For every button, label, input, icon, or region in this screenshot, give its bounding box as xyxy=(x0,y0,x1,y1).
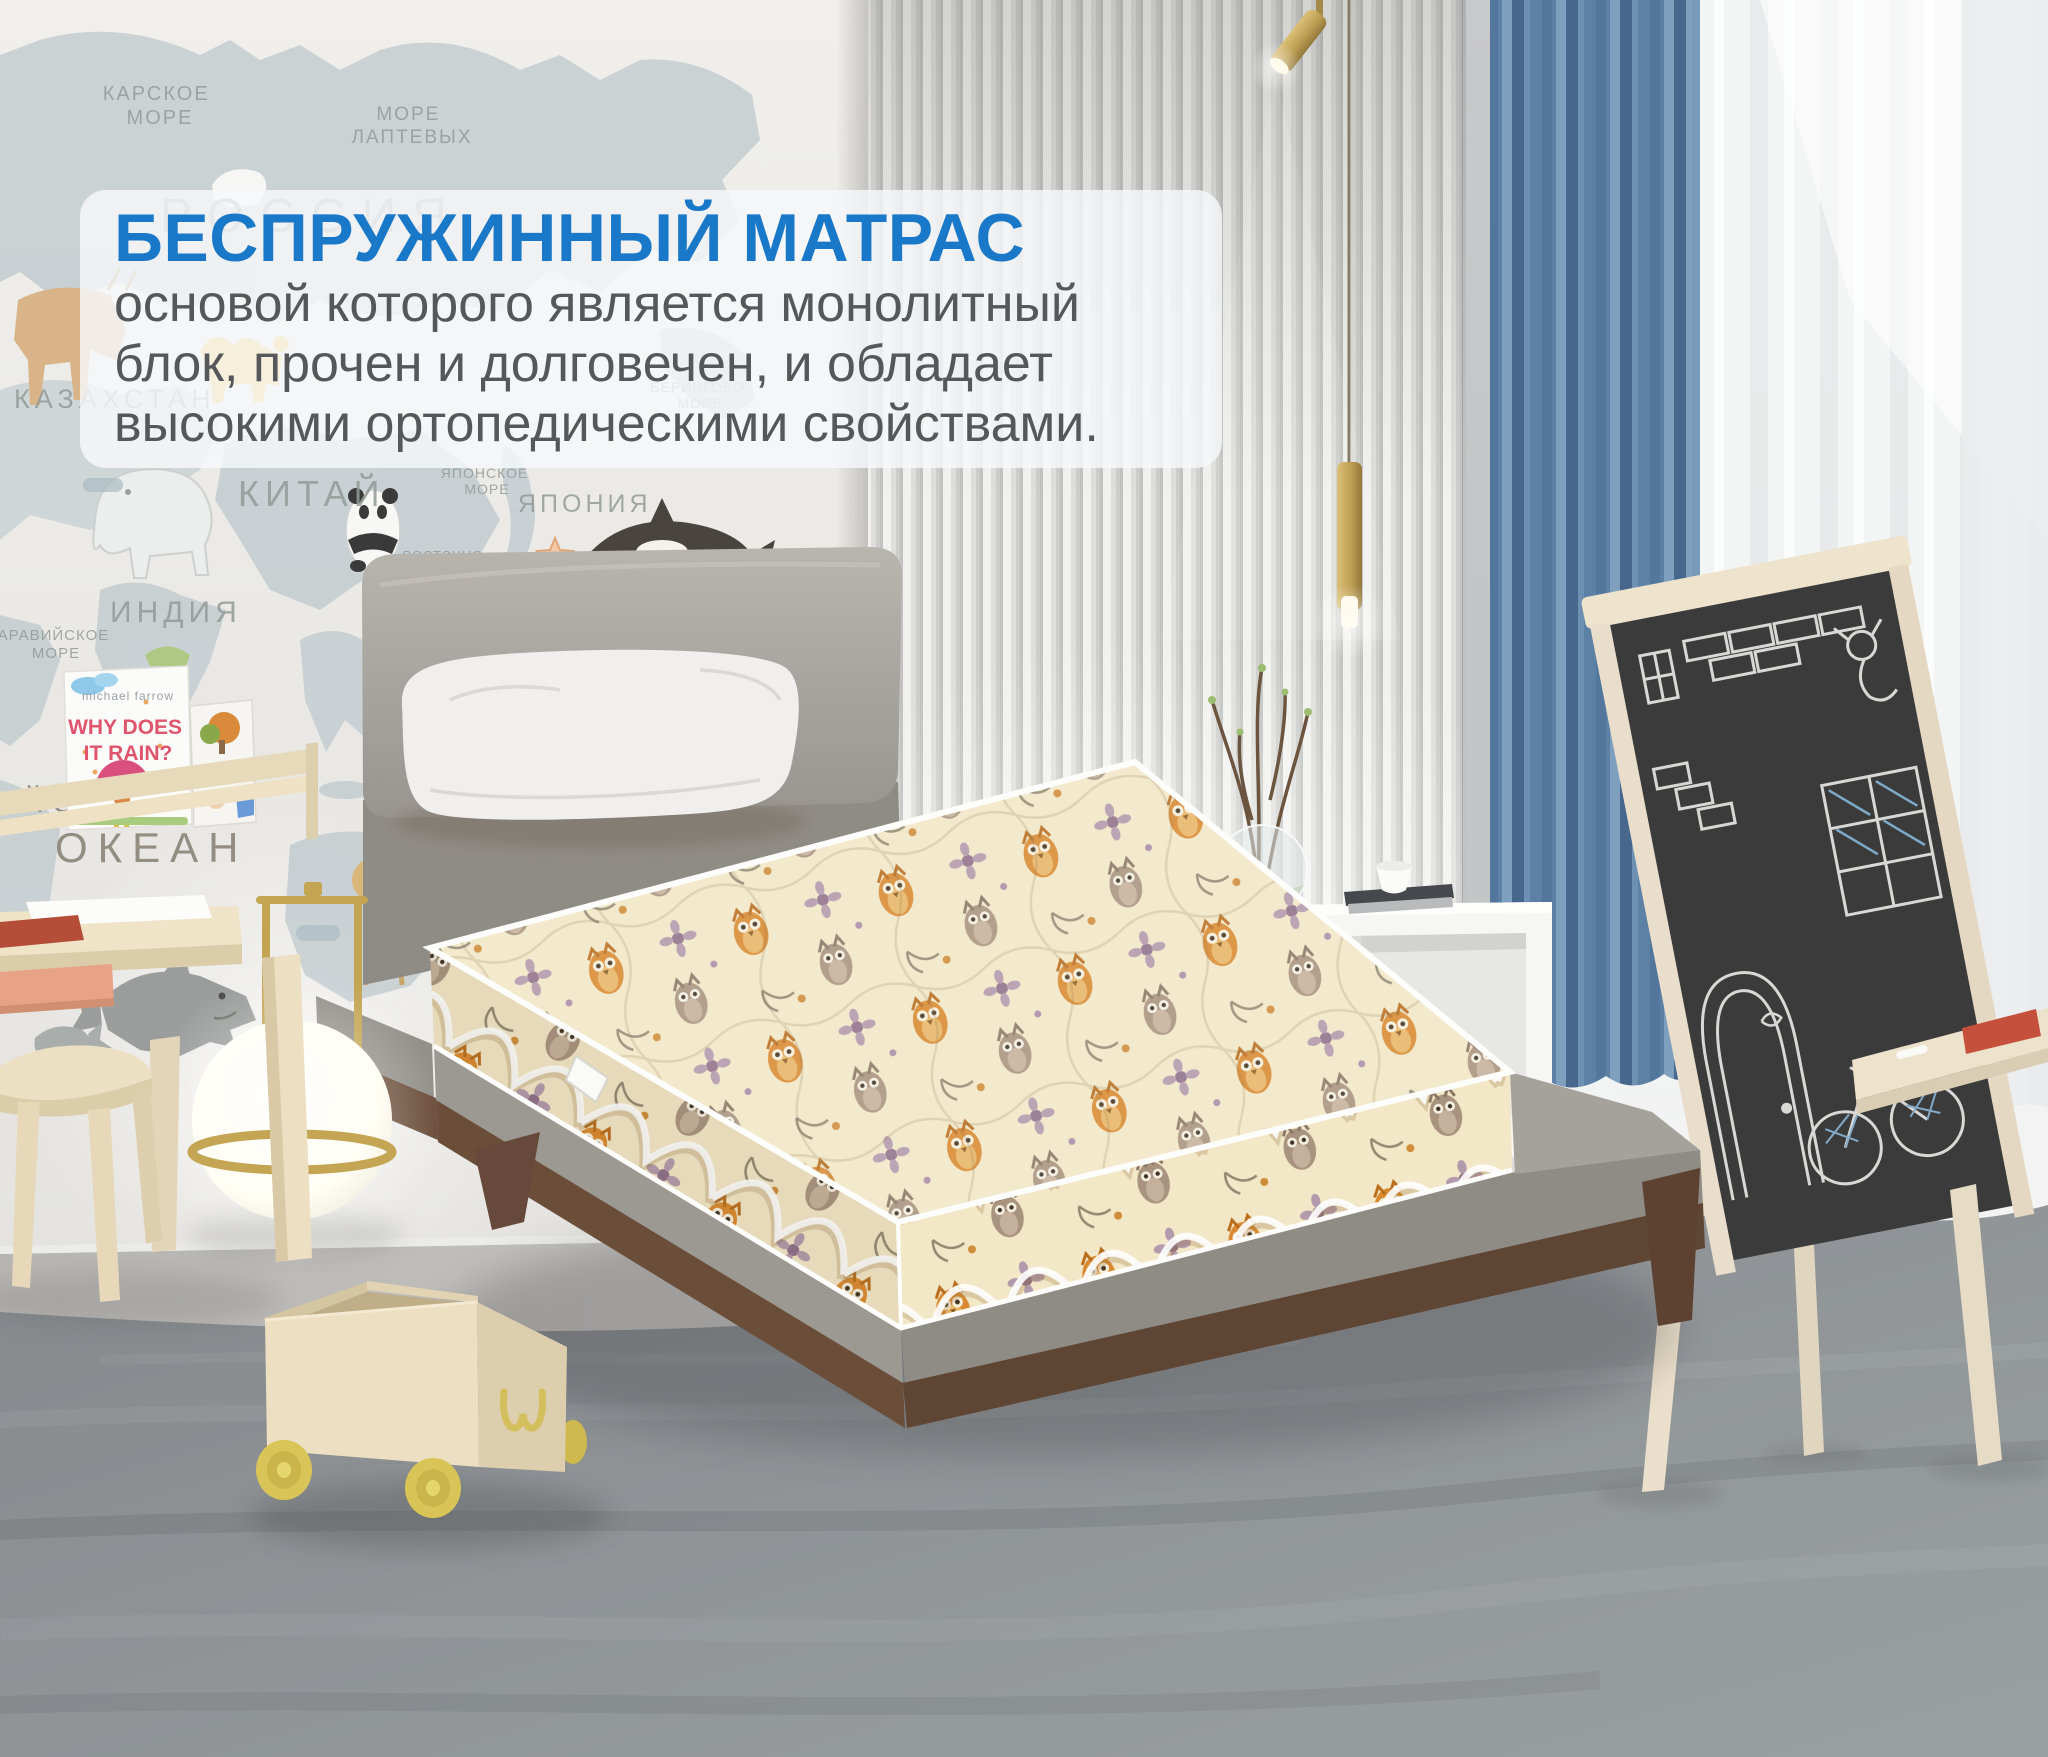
cart-wheel-left xyxy=(256,1440,312,1500)
label-okean-indian: ОКЕАН xyxy=(55,824,249,871)
label-yaponiya: ЯПОНИЯ xyxy=(518,490,652,518)
promo-line-3: высокими ортопедическими свойствами. xyxy=(114,394,1192,454)
map-pill-label xyxy=(83,478,123,492)
promo-line-1: основой которого является монолитный xyxy=(114,274,1192,334)
book1-author: michael farrow xyxy=(82,689,174,703)
cart-wheel-front xyxy=(405,1458,461,1518)
label-indiya: ИНДИЯ xyxy=(110,596,242,629)
label-kitay: КИТАЙ xyxy=(238,472,386,514)
promo-text-panel: БЕСПРУЖИННЫЙ МАТРАС основой которого явл… xyxy=(80,190,1222,468)
kids-room-product-photo: КАРСКОЕ МОРЕ МОРЕ ЛАПТЕВЫХ РОССИЯ КАЗАХС… xyxy=(0,0,2048,1757)
shelf-side-cap xyxy=(306,742,318,840)
promo-line-2: блок, прочен и долговечен, и обладает xyxy=(114,334,1192,394)
map-pill-label xyxy=(296,925,340,941)
promo-title: БЕСПРУЖИННЫЙ МАТРАС xyxy=(114,202,1192,274)
cart-front-face xyxy=(265,1302,479,1467)
